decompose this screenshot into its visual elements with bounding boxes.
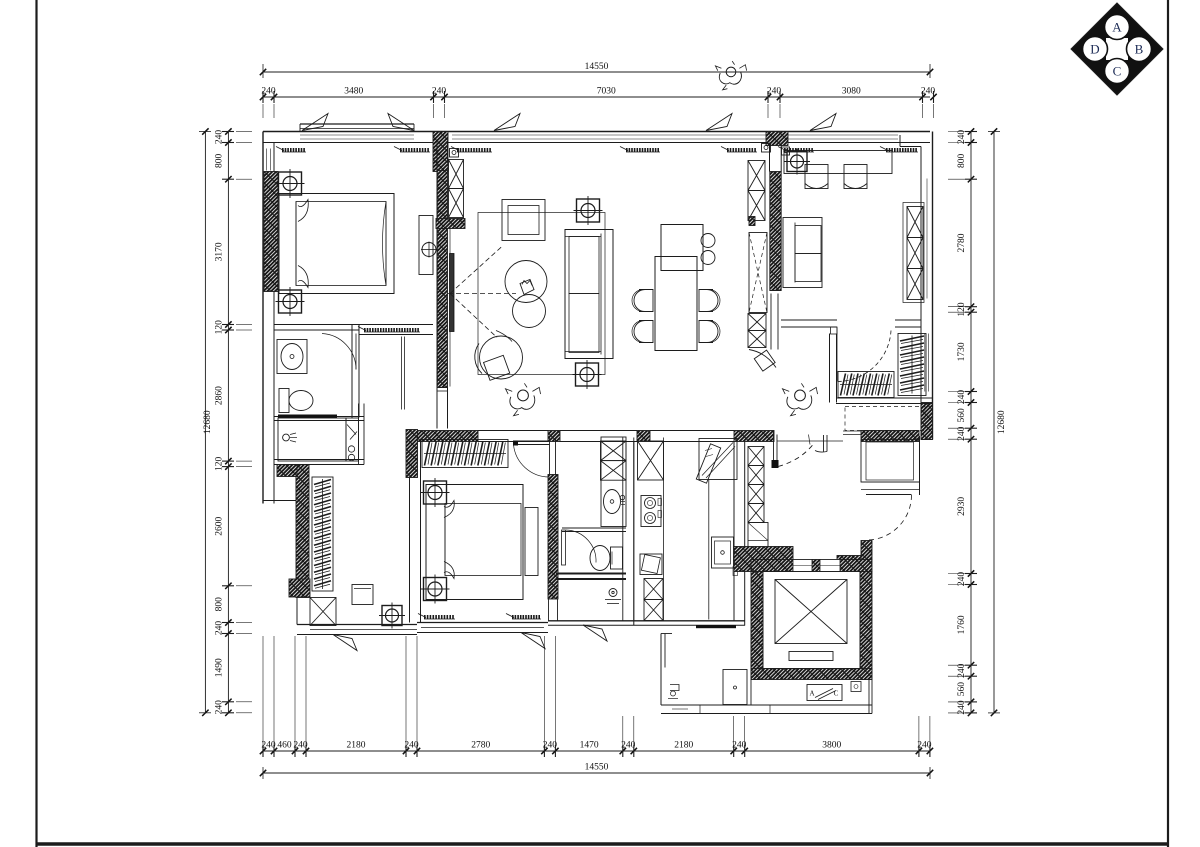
svg-text:12680: 12680 (203, 410, 213, 434)
svg-text:C: C (834, 690, 839, 698)
svg-text:240: 240 (921, 87, 936, 97)
svg-text:1490: 1490 (215, 658, 225, 677)
svg-text:A: A (809, 690, 814, 698)
svg-text:120: 120 (957, 302, 967, 317)
svg-text:240: 240 (432, 87, 447, 97)
svg-text:7030: 7030 (597, 87, 616, 97)
svg-text:1760: 1760 (957, 615, 967, 634)
svg-text:C: C (1113, 64, 1122, 79)
svg-text:1470: 1470 (580, 741, 599, 751)
svg-text:B: B (1135, 42, 1144, 57)
svg-text:2860: 2860 (215, 386, 225, 405)
svg-text:460: 460 (277, 741, 292, 751)
svg-text:240: 240 (215, 700, 225, 715)
svg-text:2180: 2180 (347, 741, 366, 751)
svg-text:1730: 1730 (957, 342, 967, 361)
svg-text:2930: 2930 (957, 497, 967, 516)
svg-text:A: A (1112, 20, 1122, 35)
svg-text:D: D (1090, 42, 1099, 57)
svg-text:14550: 14550 (585, 763, 609, 773)
svg-text:240: 240 (767, 87, 782, 97)
svg-text:3800: 3800 (822, 741, 841, 751)
svg-text:800: 800 (215, 597, 225, 612)
svg-text:120: 120 (215, 320, 225, 335)
svg-text:240: 240 (957, 130, 967, 145)
svg-text:2600: 2600 (215, 516, 225, 535)
svg-text:240: 240 (215, 130, 225, 145)
svg-text:2780: 2780 (471, 741, 490, 751)
svg-text:240: 240 (215, 621, 225, 636)
svg-text:800: 800 (215, 154, 225, 169)
svg-text:240: 240 (957, 572, 967, 587)
svg-text:3480: 3480 (344, 87, 363, 97)
svg-text:240: 240 (957, 700, 967, 715)
svg-text:240: 240 (957, 663, 967, 678)
svg-text:12680: 12680 (997, 410, 1007, 434)
svg-text:240: 240 (957, 390, 967, 405)
svg-text:800: 800 (957, 154, 967, 169)
svg-text:560: 560 (957, 682, 967, 697)
svg-text:240: 240 (957, 426, 967, 441)
svg-text:2780: 2780 (957, 233, 967, 252)
svg-text:2180: 2180 (674, 741, 693, 751)
svg-text:120: 120 (215, 457, 225, 472)
svg-text:560: 560 (957, 408, 967, 423)
svg-text:3080: 3080 (842, 87, 861, 97)
svg-text:240: 240 (261, 87, 276, 97)
svg-text:14550: 14550 (585, 62, 609, 72)
svg-text:3170: 3170 (215, 242, 225, 261)
